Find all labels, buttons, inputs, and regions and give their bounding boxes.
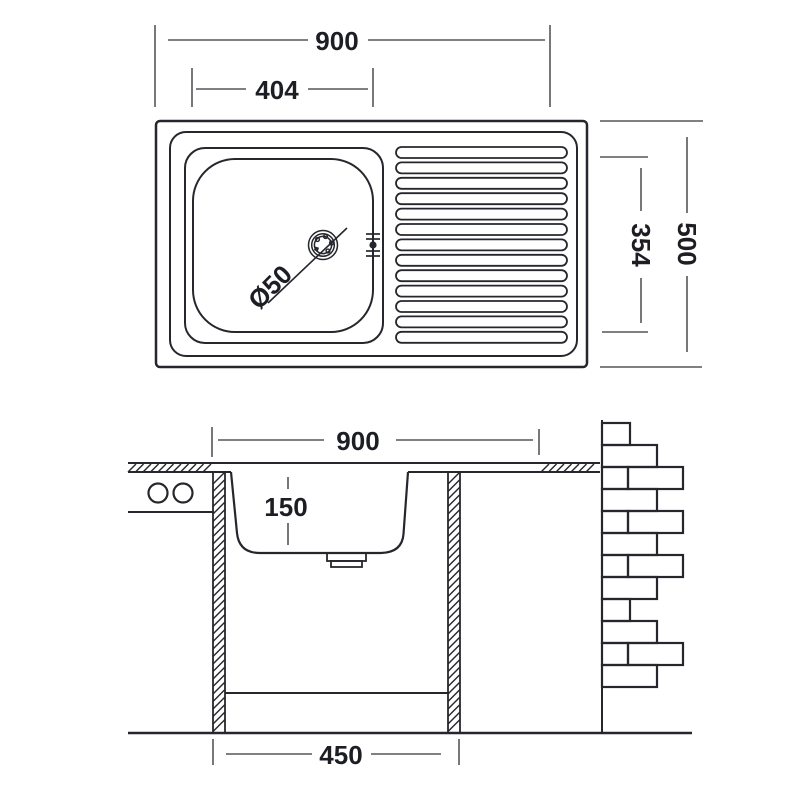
drainboard-rib xyxy=(396,193,567,204)
drainboard-rib xyxy=(396,286,567,297)
hatch-line xyxy=(556,464,564,472)
top-view: Ø50 900 404 xyxy=(155,25,703,367)
counter-hatch-right xyxy=(541,464,594,472)
hatch-line xyxy=(143,464,151,472)
hatch-line xyxy=(136,464,144,472)
technical-drawing-page: Ø50 900 404 xyxy=(0,0,800,800)
drainboard-rib xyxy=(396,224,567,235)
hatch-line xyxy=(564,464,572,472)
dim-overall-depth-label: 500 xyxy=(672,222,702,265)
brick xyxy=(602,533,657,555)
cabinet-post-left-hatch xyxy=(213,472,225,732)
dim-bowl-height: 150 xyxy=(264,477,307,545)
brick xyxy=(628,511,683,533)
hatch-line xyxy=(181,464,189,472)
brick xyxy=(602,445,657,467)
drain-hole xyxy=(326,249,330,253)
brick xyxy=(602,555,628,577)
dim-front-overall-width-label: 900 xyxy=(336,426,379,456)
dim-top-overall-width-label: 900 xyxy=(315,26,358,56)
hatch-line xyxy=(571,464,579,472)
dim-bowl-width: 404 xyxy=(192,68,373,107)
dim-bowl-height-label: 150 xyxy=(264,492,307,522)
drainboard-rib xyxy=(396,270,567,281)
brick xyxy=(602,621,657,643)
hatch-line xyxy=(128,464,136,472)
drainboard-rib xyxy=(396,162,567,173)
drainboard-rib xyxy=(396,255,567,266)
hatch-line xyxy=(151,464,159,472)
drain-symbol xyxy=(309,231,338,260)
dim-bowl-depth: 354 xyxy=(600,157,656,332)
drain-fitting xyxy=(327,553,366,567)
drainboard-rib xyxy=(396,209,567,220)
hatch-line xyxy=(579,464,587,472)
brick xyxy=(628,467,683,489)
drain-diameter-label: Ø50 xyxy=(242,259,298,315)
brick xyxy=(602,643,628,665)
hatch-line xyxy=(549,464,557,472)
front-view: 900 150 xyxy=(128,420,692,770)
drainboard-rib xyxy=(396,178,567,189)
drainboard-ribs xyxy=(396,147,567,343)
hob-ring xyxy=(149,484,168,503)
bowl-inner xyxy=(193,159,373,332)
drain-hole xyxy=(316,238,320,242)
brick xyxy=(602,599,630,621)
hatch-line xyxy=(586,464,594,472)
dim-cabinet-width: 450 xyxy=(213,739,459,770)
cabinet-post-right-hatch xyxy=(448,472,460,732)
drainboard-rib xyxy=(396,147,567,158)
dim-bowl-depth-label: 354 xyxy=(626,223,656,267)
drainboard-rib xyxy=(396,301,567,312)
brick xyxy=(628,555,683,577)
drainboard-rib xyxy=(396,332,567,343)
dim-cabinet-width-label: 450 xyxy=(319,740,362,770)
bowl-section-profile xyxy=(231,472,408,553)
hatch-line xyxy=(188,464,196,472)
dim-top-overall-width: 900 xyxy=(155,25,550,107)
bowl-outer xyxy=(185,148,383,343)
brick xyxy=(602,577,657,599)
sink-technical-drawing: Ø50 900 404 xyxy=(0,0,800,800)
dim-front-overall-width: 900 xyxy=(212,426,539,457)
drainboard-rib xyxy=(396,239,567,250)
hatch-line xyxy=(173,464,181,472)
brick-wall xyxy=(602,423,683,687)
brick xyxy=(602,665,657,687)
hatch-line xyxy=(541,464,549,472)
brick xyxy=(602,511,628,533)
drainboard-rib xyxy=(396,316,567,327)
hatch-line xyxy=(203,464,211,472)
brick xyxy=(602,467,628,489)
brick xyxy=(602,489,657,511)
brick xyxy=(628,643,683,665)
counter-hatch-left xyxy=(128,464,211,472)
brick xyxy=(602,423,630,445)
hob-ring xyxy=(174,484,193,503)
hatch-line xyxy=(166,464,174,472)
hatch-line xyxy=(158,464,166,472)
hatch-line xyxy=(196,464,204,472)
dim-bowl-width-label: 404 xyxy=(255,75,299,105)
